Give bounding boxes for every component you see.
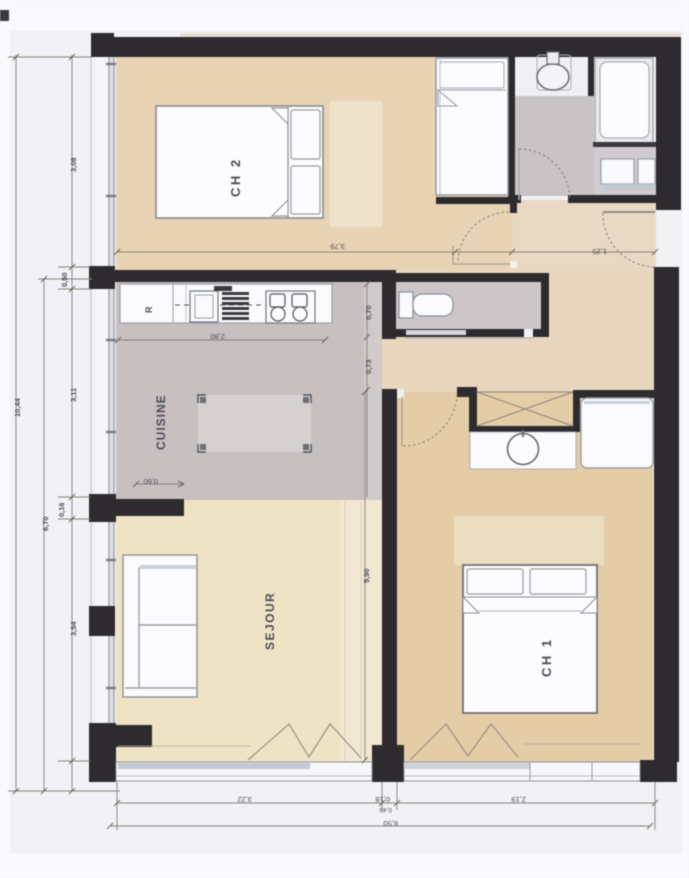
svg-text:0,70: 0,70 bbox=[364, 305, 373, 320]
svg-text:R: R bbox=[144, 306, 154, 313]
svg-text:3,79: 3,79 bbox=[330, 242, 345, 251]
svg-text:SEJOUR: SEJOUR bbox=[263, 592, 277, 650]
svg-text:CH 2: CH 2 bbox=[228, 157, 243, 197]
svg-text:0,73: 0,73 bbox=[364, 359, 373, 374]
svg-text:0,18: 0,18 bbox=[375, 795, 390, 804]
svg-text:0,60: 0,60 bbox=[143, 477, 158, 486]
svg-text:2,19: 2,19 bbox=[511, 795, 526, 804]
svg-text:0,46: 0,46 bbox=[379, 806, 392, 813]
svg-text:2,80: 2,80 bbox=[210, 332, 225, 341]
svg-text:3,22: 3,22 bbox=[237, 795, 252, 804]
svg-text:6,70: 6,70 bbox=[41, 516, 50, 531]
svg-text:0,50: 0,50 bbox=[60, 272, 69, 287]
svg-text:CUISINE: CUISINE bbox=[154, 394, 168, 450]
svg-text:3,11: 3,11 bbox=[69, 388, 78, 402]
svg-text:10,44: 10,44 bbox=[13, 397, 22, 417]
svg-text:6,50: 6,50 bbox=[383, 819, 398, 828]
svg-text:5,90: 5,90 bbox=[362, 568, 371, 583]
svg-text:0,16: 0,16 bbox=[57, 502, 66, 517]
svg-text:1,25: 1,25 bbox=[592, 247, 607, 256]
svg-text:3,54: 3,54 bbox=[69, 621, 78, 636]
svg-text:CH 1: CH 1 bbox=[539, 637, 554, 677]
svg-text:3,08: 3,08 bbox=[69, 157, 78, 172]
